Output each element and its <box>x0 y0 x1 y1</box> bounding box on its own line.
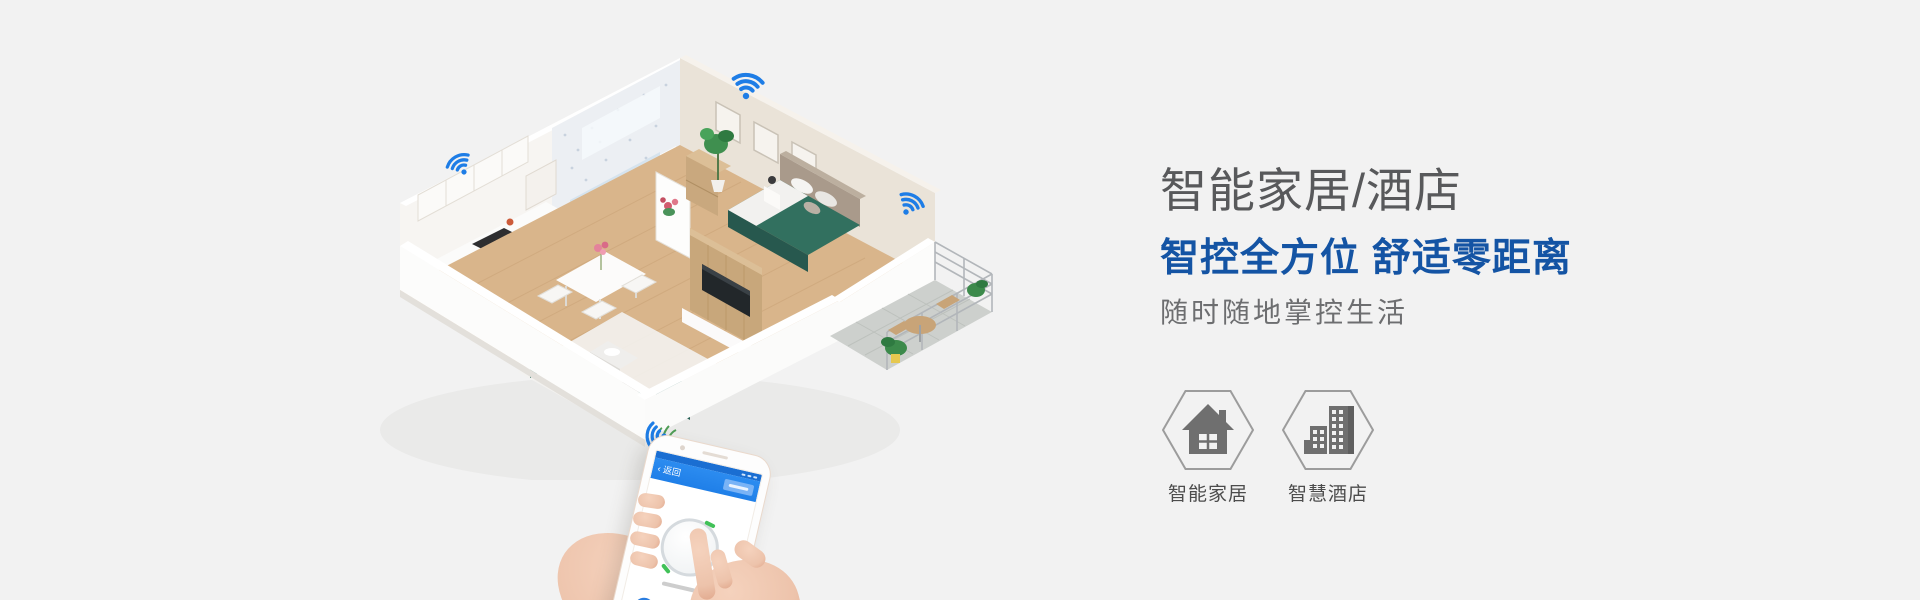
back-button: ‹ 返回 <box>657 464 682 478</box>
dial-tick <box>661 563 671 574</box>
category-smart-hotel[interactable]: 智慧酒店 <box>1282 390 1374 506</box>
category-smart-home[interactable]: 智能家居 <box>1162 390 1254 506</box>
hero-text: 智能家居/酒店 智控全方位 舒适零距离 随时随地掌控生活 <box>1160 166 1680 329</box>
category-label: 智慧酒店 <box>1288 479 1368 506</box>
hero-tagline: 随时随地掌控生活 <box>1160 298 1680 329</box>
house-icon <box>1162 390 1254 470</box>
hero-subtitle: 智控全方位 舒适零距离 <box>1160 239 1680 280</box>
page-title: 智能家居/酒店 <box>1160 166 1680 215</box>
power-button-icon <box>632 596 656 600</box>
lamp <box>768 176 776 184</box>
category-label: 智能家居 <box>1168 479 1248 506</box>
apartment-illustration <box>360 40 1020 480</box>
phone-speaker <box>702 451 728 460</box>
building-icon <box>1282 390 1374 470</box>
category-icons: 智能家居 <box>1162 390 1374 506</box>
phone-camera <box>680 445 686 451</box>
dial-tick <box>704 520 716 529</box>
hero-banner: ‹ 返回 智能家居/酒店 智控全方位 舒适零距离 随时随地掌控生活 <box>0 0 1920 600</box>
header-action-button <box>723 479 755 496</box>
